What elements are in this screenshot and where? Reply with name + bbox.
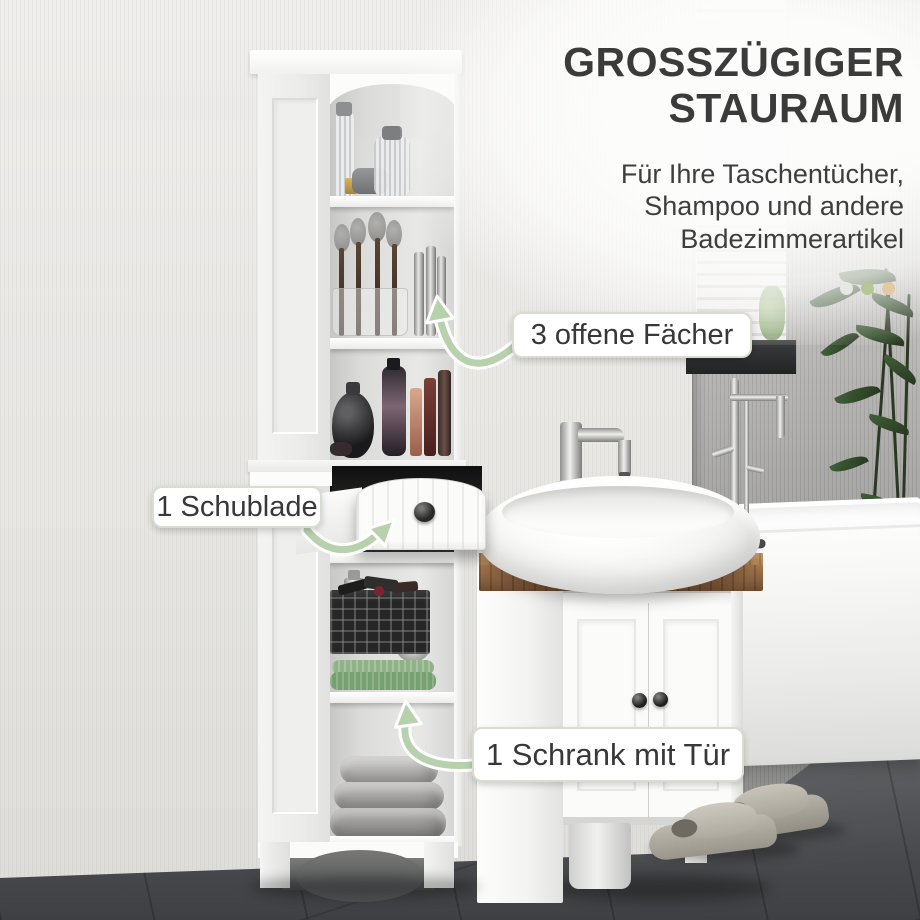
jar-lid: [382, 126, 402, 140]
shelf-board: [330, 338, 454, 349]
open-drawer: [296, 462, 496, 566]
headline-line1: GROSSZÜGIGER: [563, 40, 904, 86]
door-knob: [653, 692, 668, 707]
vessel-sink: [478, 420, 760, 594]
lipgloss-tube: [424, 378, 436, 456]
open-shelves-upper: [330, 74, 454, 462]
lipgloss-tube: [410, 388, 422, 456]
metal-tube: [414, 252, 424, 336]
perfume-cap: [387, 358, 400, 370]
glass-jar: [374, 136, 410, 196]
tall-cabinet-floor-shadow: [250, 876, 480, 898]
color-dot-gray: [840, 282, 853, 295]
plant-leaf: [821, 327, 860, 363]
green-towel: [330, 672, 436, 690]
plant-leaf: [854, 325, 906, 347]
brush-cup: [332, 288, 408, 336]
plant-leaf: [834, 379, 881, 411]
drawer-knob: [414, 502, 435, 522]
product-image: GROSSZÜGIGER STAURAUM Für Ihre Taschentü…: [0, 0, 920, 920]
subheadline-line3: Badezimmerartikel: [621, 223, 904, 255]
cabinet-crown: [250, 50, 462, 74]
subheadline-line2: Shampoo und andere: [621, 190, 904, 222]
cosmetic-disc: [330, 442, 352, 456]
callout-label: 3 offene Fächer: [531, 319, 734, 352]
folded-towel: [340, 756, 438, 784]
sink-cabinet-side: [477, 545, 563, 903]
plant-leaf: [829, 451, 869, 478]
callout-label: 1 Schrank mit Tür: [486, 737, 730, 773]
headline: GROSSZÜGIGER STAURAUM: [563, 40, 904, 132]
headline-line2: STAURAUM: [563, 86, 904, 132]
spray-cap: [348, 570, 360, 580]
color-dots: [840, 282, 895, 295]
subheadline-line1: Für Ihre Taschentücher,: [621, 158, 904, 190]
folded-towel: [334, 782, 444, 810]
callout-cabinet-door: 1 Schrank mit Tür: [472, 727, 744, 782]
wire-basket: [330, 590, 430, 654]
cosmetic-tube: [438, 370, 451, 456]
subheadline: Für Ihre Taschentücher, Shampoo und ande…: [621, 158, 904, 255]
shelf-board: [330, 196, 454, 207]
callout-drawer: 1 Schublade: [152, 486, 322, 528]
color-dot-green: [861, 282, 874, 295]
perfume-bottle-dark: [382, 366, 406, 456]
pipe-cover: [569, 823, 631, 889]
door-knob: [632, 693, 647, 708]
sink-cabinet-door-right: [651, 603, 731, 817]
basket-item: [374, 586, 384, 596]
callout-open-shelves: 3 offene Fächer: [512, 312, 752, 358]
side-panel-recess: [272, 98, 318, 434]
tub-faucet-spout: [776, 396, 785, 438]
color-dot-tan: [882, 282, 895, 295]
window-greenery: [759, 286, 785, 340]
flask-cap: [346, 382, 360, 395]
perfume-cap: [336, 102, 352, 116]
folded-towel: [330, 808, 446, 838]
shelf-board: [330, 692, 454, 703]
plant-leaf: [879, 354, 920, 385]
sink-cabinet-edge: [731, 591, 743, 819]
sink-basin: [502, 486, 734, 538]
metal-tube: [437, 256, 446, 336]
callout-label: 1 Schublade: [156, 491, 317, 524]
cabinet-side-upper: [258, 74, 330, 462]
metal-tube: [426, 246, 436, 336]
sink-cabinet-door-left: [565, 603, 649, 817]
